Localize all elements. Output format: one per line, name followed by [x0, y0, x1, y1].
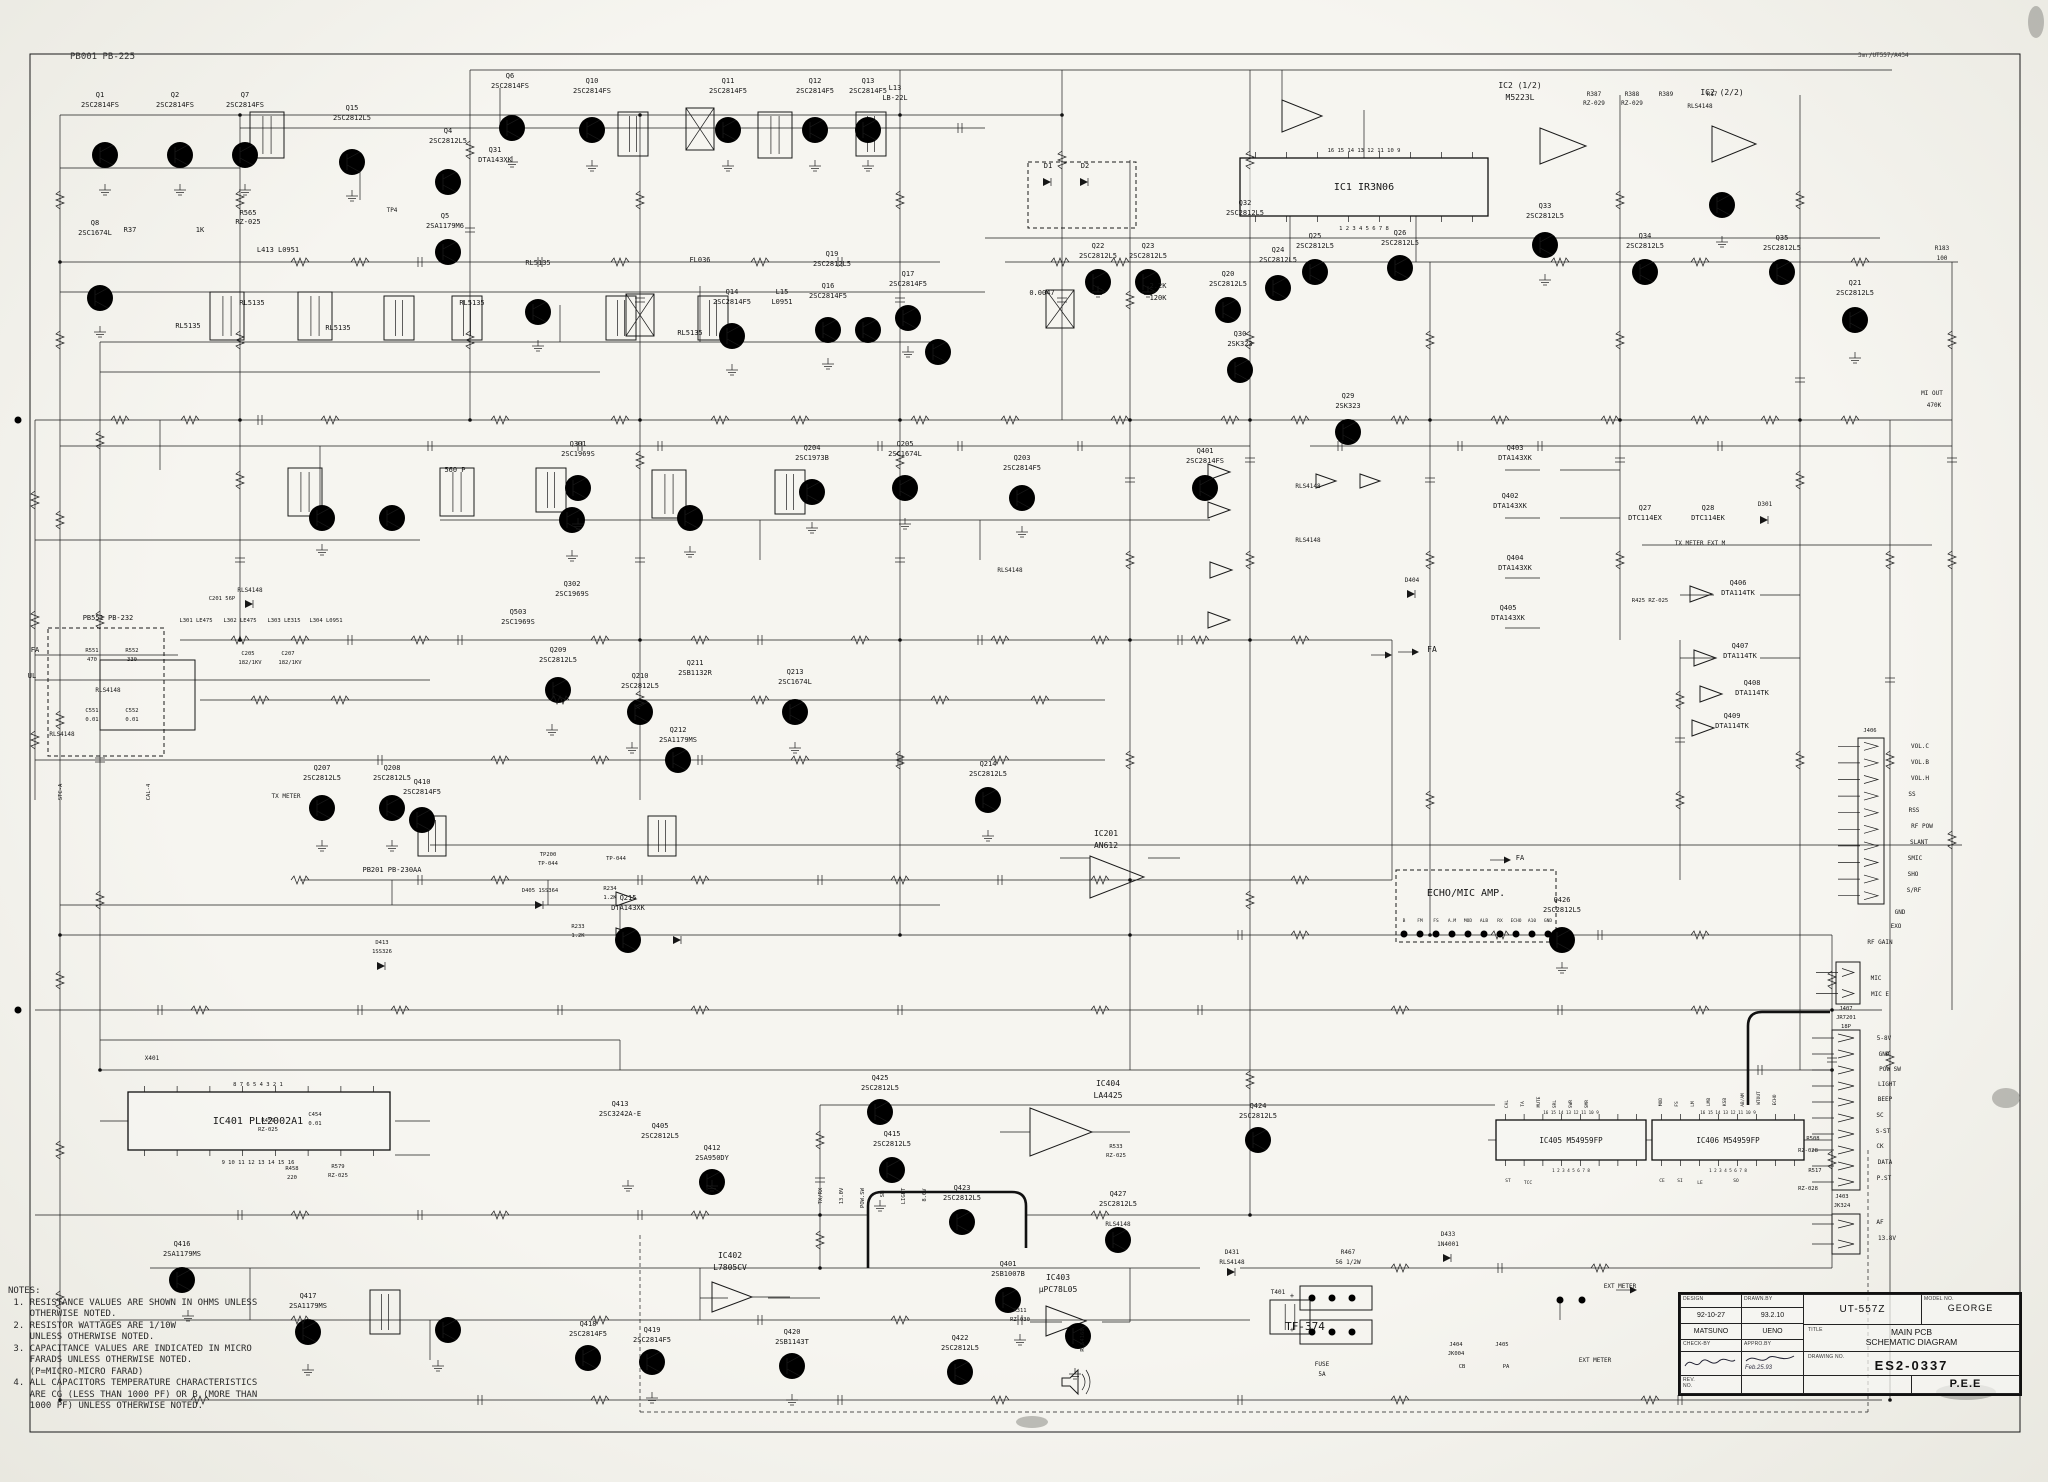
component-label: Q4 — [444, 127, 452, 135]
transformer-box — [384, 296, 414, 340]
component-label: PB551 PB-232 — [83, 614, 134, 622]
component-label: LE — [1697, 1180, 1703, 1186]
connector-pin-chevron — [1838, 1130, 1854, 1138]
connector-pin-chevron — [1838, 1098, 1854, 1106]
sheet-code-left: PB001 PB-225 — [70, 52, 135, 62]
component-label: M5223L — [1506, 93, 1535, 102]
component-label: D2 — [1081, 162, 1089, 170]
component-label: WTOUT — [1756, 1091, 1762, 1105]
component-label: Q214 — [980, 760, 997, 768]
component-label: Q426 — [1554, 896, 1571, 904]
component-label: Q29 — [1342, 392, 1355, 400]
component-label: 182/1KV — [278, 660, 302, 666]
component-label: RL5135 — [239, 299, 264, 307]
component-label: SRL — [1552, 1100, 1558, 1108]
component-label: Q215 — [620, 894, 637, 902]
transistor-circle — [615, 927, 641, 953]
transistor-circle — [1065, 1323, 1091, 1349]
component-label: Q422 — [952, 1334, 969, 1342]
component-label: 8.0V — [922, 1188, 928, 1202]
component-label: Q405 — [652, 1122, 669, 1130]
component-label: LM — [1690, 1101, 1696, 1107]
component-label: LMB — [1706, 1098, 1712, 1106]
component-label: 2SC2812L5 — [1099, 1200, 1137, 1208]
diode — [673, 936, 681, 944]
transistor-circle — [867, 1099, 893, 1125]
component-label: DTA114TK — [1735, 689, 1770, 697]
component-label: DTA143XK — [1498, 454, 1533, 462]
component-label: 16 15 14 13 12 11 10 9 — [1700, 1110, 1756, 1115]
connector-pin-chevron — [1838, 1082, 1854, 1090]
component-label: Q406 — [1730, 579, 1747, 587]
component-label: 2SC2812L5 — [539, 656, 577, 664]
pin-circle — [1481, 931, 1488, 938]
component-label: IC2 (1/2) — [1498, 81, 1541, 90]
component-label: R552 — [125, 648, 138, 654]
diode — [1760, 516, 1768, 524]
transformer-box — [618, 112, 648, 156]
component-label: SLANT — [1910, 839, 1928, 846]
component-label: 2SA950DY — [695, 1154, 730, 1162]
component-label: R458 — [285, 1166, 298, 1172]
component-label: RX — [1497, 918, 1503, 924]
component-label: RZ-025 — [1106, 1153, 1126, 1159]
component-label: SI — [1677, 1178, 1683, 1184]
component-label: 1SS326 — [372, 949, 392, 955]
component-label: POW SW — [1879, 1066, 1901, 1073]
titleblock-drawn-label: DRAWN.BY — [1741, 1294, 1804, 1308]
junction-dot — [638, 113, 642, 117]
connector-box — [1832, 1030, 1860, 1190]
component-label: J407 — [1839, 1006, 1852, 1012]
titleblock-model-label: MODEL NO. — [1922, 1295, 2019, 1303]
component-label: R17 — [1707, 91, 1718, 98]
junction-dot — [1128, 878, 1132, 882]
transistor-circle — [1387, 255, 1413, 281]
junction-dot — [1248, 1213, 1252, 1217]
component-label: 2SC2812L5 — [1226, 209, 1264, 217]
component-label: RLS4168 — [1080, 1328, 1086, 1351]
component-label: DATA — [1878, 1159, 1893, 1166]
transistor-circle — [1215, 297, 1241, 323]
transistor-circle — [639, 1349, 665, 1375]
component-label: Q211 — [687, 659, 704, 667]
component-label: Q208 — [384, 764, 401, 772]
transformer-box — [440, 468, 474, 516]
transistor-circle — [715, 117, 741, 143]
junction-dot — [238, 638, 242, 642]
component-label: Q212 — [670, 726, 687, 734]
transistor-circle — [1245, 1127, 1271, 1153]
component-label: Q407 — [1732, 642, 1749, 650]
junction-dot — [818, 1266, 822, 1270]
diode — [377, 962, 385, 970]
pin-circle — [1465, 931, 1472, 938]
bus-trace — [868, 1192, 1026, 1268]
component-label: J405 — [1495, 1342, 1508, 1348]
component-label: Q27 — [1639, 504, 1652, 512]
component-label: 330 — [127, 657, 137, 663]
component-label: Q35 — [1776, 234, 1789, 242]
opamp-triangle — [1690, 586, 1712, 602]
component-label: Q15 — [346, 104, 359, 112]
component-label: BEEP — [1878, 1096, 1893, 1103]
component-label: 2SC1674L — [888, 450, 922, 458]
component-label: R387 — [1587, 91, 1602, 98]
connector-pin-chevron — [1838, 1178, 1854, 1186]
component-label: Q401 — [1000, 1260, 1017, 1268]
transistor-circle — [295, 1319, 321, 1345]
component-label: Q413 — [612, 1100, 629, 1108]
component-label: 2SC2812L5 — [1296, 242, 1334, 250]
component-label: 2SC1969S — [501, 618, 535, 626]
component-label: DTA114TK — [1723, 652, 1758, 660]
component-box — [100, 660, 195, 730]
junction-dot — [898, 638, 902, 642]
component-label: 2SC2814F5 — [633, 1336, 671, 1344]
component-label: 2SC2812L5 — [1259, 256, 1297, 264]
component-label: Q427 — [1110, 1190, 1127, 1198]
pin-circle — [1433, 931, 1440, 938]
connector-pin-chevron — [1838, 1034, 1854, 1042]
transistor-circle — [579, 117, 605, 143]
component-label: R508 — [1806, 1136, 1819, 1142]
component-label: R551 — [85, 648, 98, 654]
component-label: POW.SW — [860, 1187, 866, 1208]
connector-box — [1832, 1214, 1860, 1254]
speaker-wave — [1086, 1370, 1090, 1394]
junction-dot — [98, 1068, 102, 1072]
component-label: 120K — [1150, 294, 1168, 302]
component-label: 2SC2814FS — [226, 101, 264, 109]
component-label: SM — [880, 1190, 886, 1197]
component-label: IC405 M54959FP — [1539, 1136, 1603, 1145]
component-label: 13.0V — [839, 1187, 845, 1204]
component-label: Q10 — [586, 77, 599, 85]
transistor-circle — [565, 475, 591, 501]
component-label: 56 1/2W — [1335, 1259, 1361, 1266]
component-label: LA4425 — [1094, 1091, 1123, 1100]
component-label: 182/1KV — [238, 660, 262, 666]
connector-pin-chevron — [1864, 759, 1878, 767]
connector-pin-chevron — [1864, 859, 1878, 867]
transistor-circle — [92, 142, 118, 168]
component-label: Q34 — [1639, 232, 1652, 240]
transistor-circle — [677, 505, 703, 531]
component-label: Q415 — [884, 1130, 901, 1138]
transformer-box — [758, 112, 792, 158]
junction-dot — [238, 418, 242, 422]
component-label: 0.01 — [125, 717, 138, 723]
component-label: RZ-025 — [258, 1127, 278, 1133]
component-label: Q401 — [1197, 447, 1214, 455]
component-label: 2SC2812L5 — [969, 770, 1007, 778]
transistor-circle — [1549, 927, 1575, 953]
component-label: RZ-029 — [1621, 100, 1643, 107]
component-label: 2SC2812L5 — [861, 1084, 899, 1092]
opamp-triangle — [1540, 128, 1586, 164]
component-label: R389 — [1659, 91, 1674, 98]
component-label: 2SA1179MS — [659, 736, 697, 744]
titleblock-design-label: DESIGN — [1680, 1294, 1742, 1308]
component-label: Q412 — [704, 1144, 721, 1152]
component-label: Q207 — [314, 764, 331, 772]
component-label: L13 — [889, 84, 902, 92]
transformer-box — [298, 292, 332, 340]
component-label: GND — [1879, 1051, 1890, 1058]
transistor-circle — [627, 699, 653, 725]
component-label: CB — [1459, 1364, 1466, 1370]
pin-circle — [1557, 1297, 1564, 1304]
check-signature — [1681, 1352, 1739, 1374]
titleblock-drawing-label: DRAWING NO. — [1806, 1353, 1846, 1361]
component-label: 2SA1179MS — [163, 1250, 201, 1258]
component-label: TP-044 — [538, 861, 559, 867]
component-label: RL5135 — [175, 322, 200, 330]
pin-circle — [1401, 931, 1408, 938]
component-label: SS — [1908, 791, 1916, 798]
transformer-box — [370, 1290, 400, 1334]
component-label: 2SC2812L5 — [1763, 244, 1801, 252]
component-label: TX METER — [272, 793, 301, 800]
component-label: D404 — [1405, 577, 1420, 584]
titleblock-org: P.E.E — [1911, 1375, 2020, 1394]
pin-circle — [1449, 931, 1456, 938]
component-label: 2SC2814F5 — [849, 87, 887, 95]
component-label: Q17 — [902, 270, 915, 278]
component-label: IC403 — [1046, 1273, 1070, 1282]
junction-dot — [1060, 113, 1064, 117]
component-label: GND — [1895, 909, 1906, 916]
component-label: µPC78L05 — [1039, 1285, 1078, 1294]
component-label: 1 2 3 4 5 6 7 8 — [1339, 226, 1389, 232]
connector-pin-chevron — [1864, 809, 1878, 817]
component-label: RLS4148 — [1219, 1259, 1245, 1266]
component-label: X401 — [145, 1055, 160, 1062]
component-label: DTC114EX — [1628, 514, 1663, 522]
component-label: TP-044 — [606, 856, 627, 862]
pin-circle — [1349, 1295, 1356, 1302]
component-label: Q416 — [174, 1240, 191, 1248]
component-label: L0951 — [771, 298, 792, 306]
component-label: TX METER EXT M — [1675, 540, 1726, 547]
transistor-circle — [1302, 259, 1328, 285]
component-label: 2SC2812L5 — [941, 1344, 979, 1352]
pin-circle — [15, 1007, 22, 1014]
component-label: FS — [1433, 918, 1439, 924]
scan-smudge — [1016, 1416, 1048, 1428]
component-label: 2SC2812L5 — [621, 682, 659, 690]
transistor-circle — [782, 699, 808, 725]
schematic-canvas: Q12SC2814FSQ22SC2814FSQ72SC2814FSQ152SC2… — [0, 0, 2048, 1482]
component-label: 2SK323 — [1335, 402, 1360, 410]
sheet-code-right: 3mr/UT557/A434 — [1858, 52, 1909, 59]
component-label: IC406 M54959FP — [1696, 1136, 1760, 1145]
net-arrow — [1412, 649, 1419, 656]
component-label: AN612 — [1094, 841, 1118, 850]
transistor-circle — [167, 142, 193, 168]
component-label: P.ST — [1877, 1175, 1892, 1182]
transistor-circle — [815, 317, 841, 343]
pin-circle — [1579, 1297, 1586, 1304]
component-label: Q25 — [1309, 232, 1322, 240]
component-label: B — [1403, 918, 1406, 924]
component-label: Q210 — [632, 672, 649, 680]
component-label: DTA114TK — [1715, 722, 1750, 730]
component-label: Q213 — [787, 668, 804, 676]
connector-pin-chevron — [1864, 792, 1878, 800]
component-label: D431 — [1225, 1249, 1240, 1256]
component-label: RL5135 — [325, 324, 350, 332]
component-label: 2SC2814FS — [491, 82, 529, 90]
transformer-box — [536, 468, 566, 512]
connector-pin-chevron — [1838, 1162, 1854, 1170]
component-label: Q23 — [1142, 242, 1155, 250]
component-label: R388 — [1625, 91, 1640, 98]
component-label: MIC — [1871, 975, 1882, 982]
component-label: 9 10 11 12 13 14 15 16 — [222, 1160, 295, 1166]
component-label: SMIC — [1908, 855, 1923, 862]
transistor-circle — [1532, 232, 1558, 258]
transistor-circle — [975, 787, 1001, 813]
component-label: Q402 — [1502, 492, 1519, 500]
component-label: FUSE — [1315, 1361, 1330, 1368]
component-label: 2SC2814FS — [1186, 457, 1224, 465]
component-label: 2SC2812L5 — [303, 774, 341, 782]
component-label: RL5135 — [677, 329, 702, 337]
component-label: FA — [1427, 645, 1437, 654]
opamp-triangle — [1090, 856, 1144, 898]
component-label: 13.8V — [1878, 1235, 1896, 1242]
junction-dot — [898, 113, 902, 117]
component-label: Q209 — [550, 646, 567, 654]
component-label: RL5135 — [525, 259, 550, 267]
component-label: 2SC2814FS — [81, 101, 119, 109]
diode — [1227, 1268, 1235, 1276]
component-label: 2SC2812L5 — [1129, 252, 1167, 260]
component-label: DTA143XK — [611, 904, 646, 912]
component-label: Q12 — [809, 77, 822, 85]
junction-dot — [1830, 1008, 1834, 1012]
scan-smudge — [2028, 6, 2044, 38]
transistor-circle — [1227, 357, 1253, 383]
connector-box — [1836, 962, 1860, 1004]
component-label: L301 LE475 — [179, 618, 212, 624]
transistor-circle — [339, 149, 365, 175]
component-label: Q30 — [1234, 330, 1247, 338]
component-label: VOL.B — [1911, 759, 1929, 766]
component-label: Q302 — [564, 580, 581, 588]
component-label: Q301 — [570, 440, 587, 448]
component-label: Q28 — [1702, 504, 1715, 512]
component-label: EXT METER — [1579, 1357, 1612, 1364]
component-label: Q5 — [441, 212, 449, 220]
component-label: 100 — [1937, 255, 1948, 262]
component-label: VOL.H — [1911, 775, 1929, 782]
component-label: Q16 — [822, 282, 835, 290]
component-label: D301 — [1758, 501, 1773, 508]
component-label: 2SC3242A-E — [599, 1110, 641, 1118]
component-label: 2SC2812L5 — [1209, 280, 1247, 288]
component-label: CE — [1659, 1178, 1665, 1184]
pin-circle — [1529, 931, 1536, 938]
component-label: DTA143XK — [478, 156, 513, 164]
net-arrow — [1385, 652, 1392, 659]
junction-dot — [1128, 418, 1132, 422]
component-label: IC402 — [718, 1251, 742, 1260]
transistor-circle — [435, 239, 461, 265]
diode — [245, 600, 253, 608]
component-label: 2SC2814F5 — [709, 87, 747, 95]
component-label: Q14 — [726, 288, 739, 296]
component-label: RZ-028 — [1798, 1186, 1818, 1192]
component-label: LB-22L — [882, 94, 907, 102]
component-label: D413 — [375, 940, 388, 946]
component-label: MOD — [1464, 918, 1472, 924]
component-label: RZ-029 — [1583, 100, 1605, 107]
component-label: 2SC2812L5 — [1543, 906, 1581, 914]
titleblock-title-label: TITLE — [1806, 1326, 1825, 1334]
titleblock-title-line2: SCHEMATIC DIAGRAM — [1804, 1337, 2019, 1347]
transistor-circle — [409, 807, 435, 833]
component-label: STC-A — [58, 783, 64, 800]
junction-dot — [818, 1213, 822, 1217]
component-label: RF POW — [1911, 823, 1933, 830]
titleblock-appro-date: Feb.25.93 — [1745, 1365, 1772, 1371]
component-label: ECHO — [1511, 918, 1522, 924]
component-label: 1K — [196, 226, 205, 234]
transistor-circle — [892, 475, 918, 501]
transistor-circle — [925, 339, 951, 365]
component-label: VOL.C — [1911, 743, 1929, 750]
component-label: FA — [1516, 854, 1525, 862]
transistor-circle — [575, 1345, 601, 1371]
transistor-circle — [1632, 259, 1658, 285]
component-label: IC401 PLL2002A1 — [213, 1116, 303, 1127]
component-label: R565 — [240, 209, 257, 217]
titleblock-model-code: UT-557Z — [1803, 1294, 1922, 1325]
component-label: 2.2K — [1150, 282, 1168, 290]
connector-pin-chevron — [1838, 1220, 1854, 1228]
junction-dot — [238, 113, 242, 117]
component-label: 2SB1143T — [775, 1338, 810, 1346]
component-label: RL5135 — [459, 299, 484, 307]
junction-dot — [898, 418, 902, 422]
component-label: A10 — [1528, 918, 1536, 924]
component-label: L413 L0951 — [257, 246, 299, 254]
component-label: 2SC2812L5 — [373, 774, 411, 782]
component-label: ECHO — [1772, 1094, 1778, 1105]
component-label: TP4 — [387, 207, 398, 214]
component-label: 2SC1969S — [561, 450, 595, 458]
connector-pin-chevron — [1838, 1114, 1854, 1122]
component-label: J406 — [1863, 728, 1876, 734]
component-label: 5A — [1318, 1371, 1326, 1378]
component-label: DTA143XK — [1491, 614, 1526, 622]
speaker-wave — [1082, 1374, 1085, 1390]
component-label: DTA143XK — [1493, 502, 1528, 510]
component-label: 2SC2812L5 — [813, 260, 851, 268]
component-label: R311 — [1013, 1308, 1026, 1314]
titleblock-model-name: GEORGE — [1922, 1303, 2019, 1313]
component-label: RLS4148 — [1295, 483, 1321, 490]
connector-pin-chevron — [1864, 875, 1878, 883]
component-label: AF — [1876, 1219, 1884, 1226]
component-label: RLS4148 — [1687, 103, 1713, 110]
component-label: S/RF — [1907, 887, 1922, 894]
opamp-triangle — [1208, 612, 1230, 628]
notes-block: NOTES: 1. RESISTANCE VALUES ARE SHOWN IN… — [8, 1286, 257, 1413]
